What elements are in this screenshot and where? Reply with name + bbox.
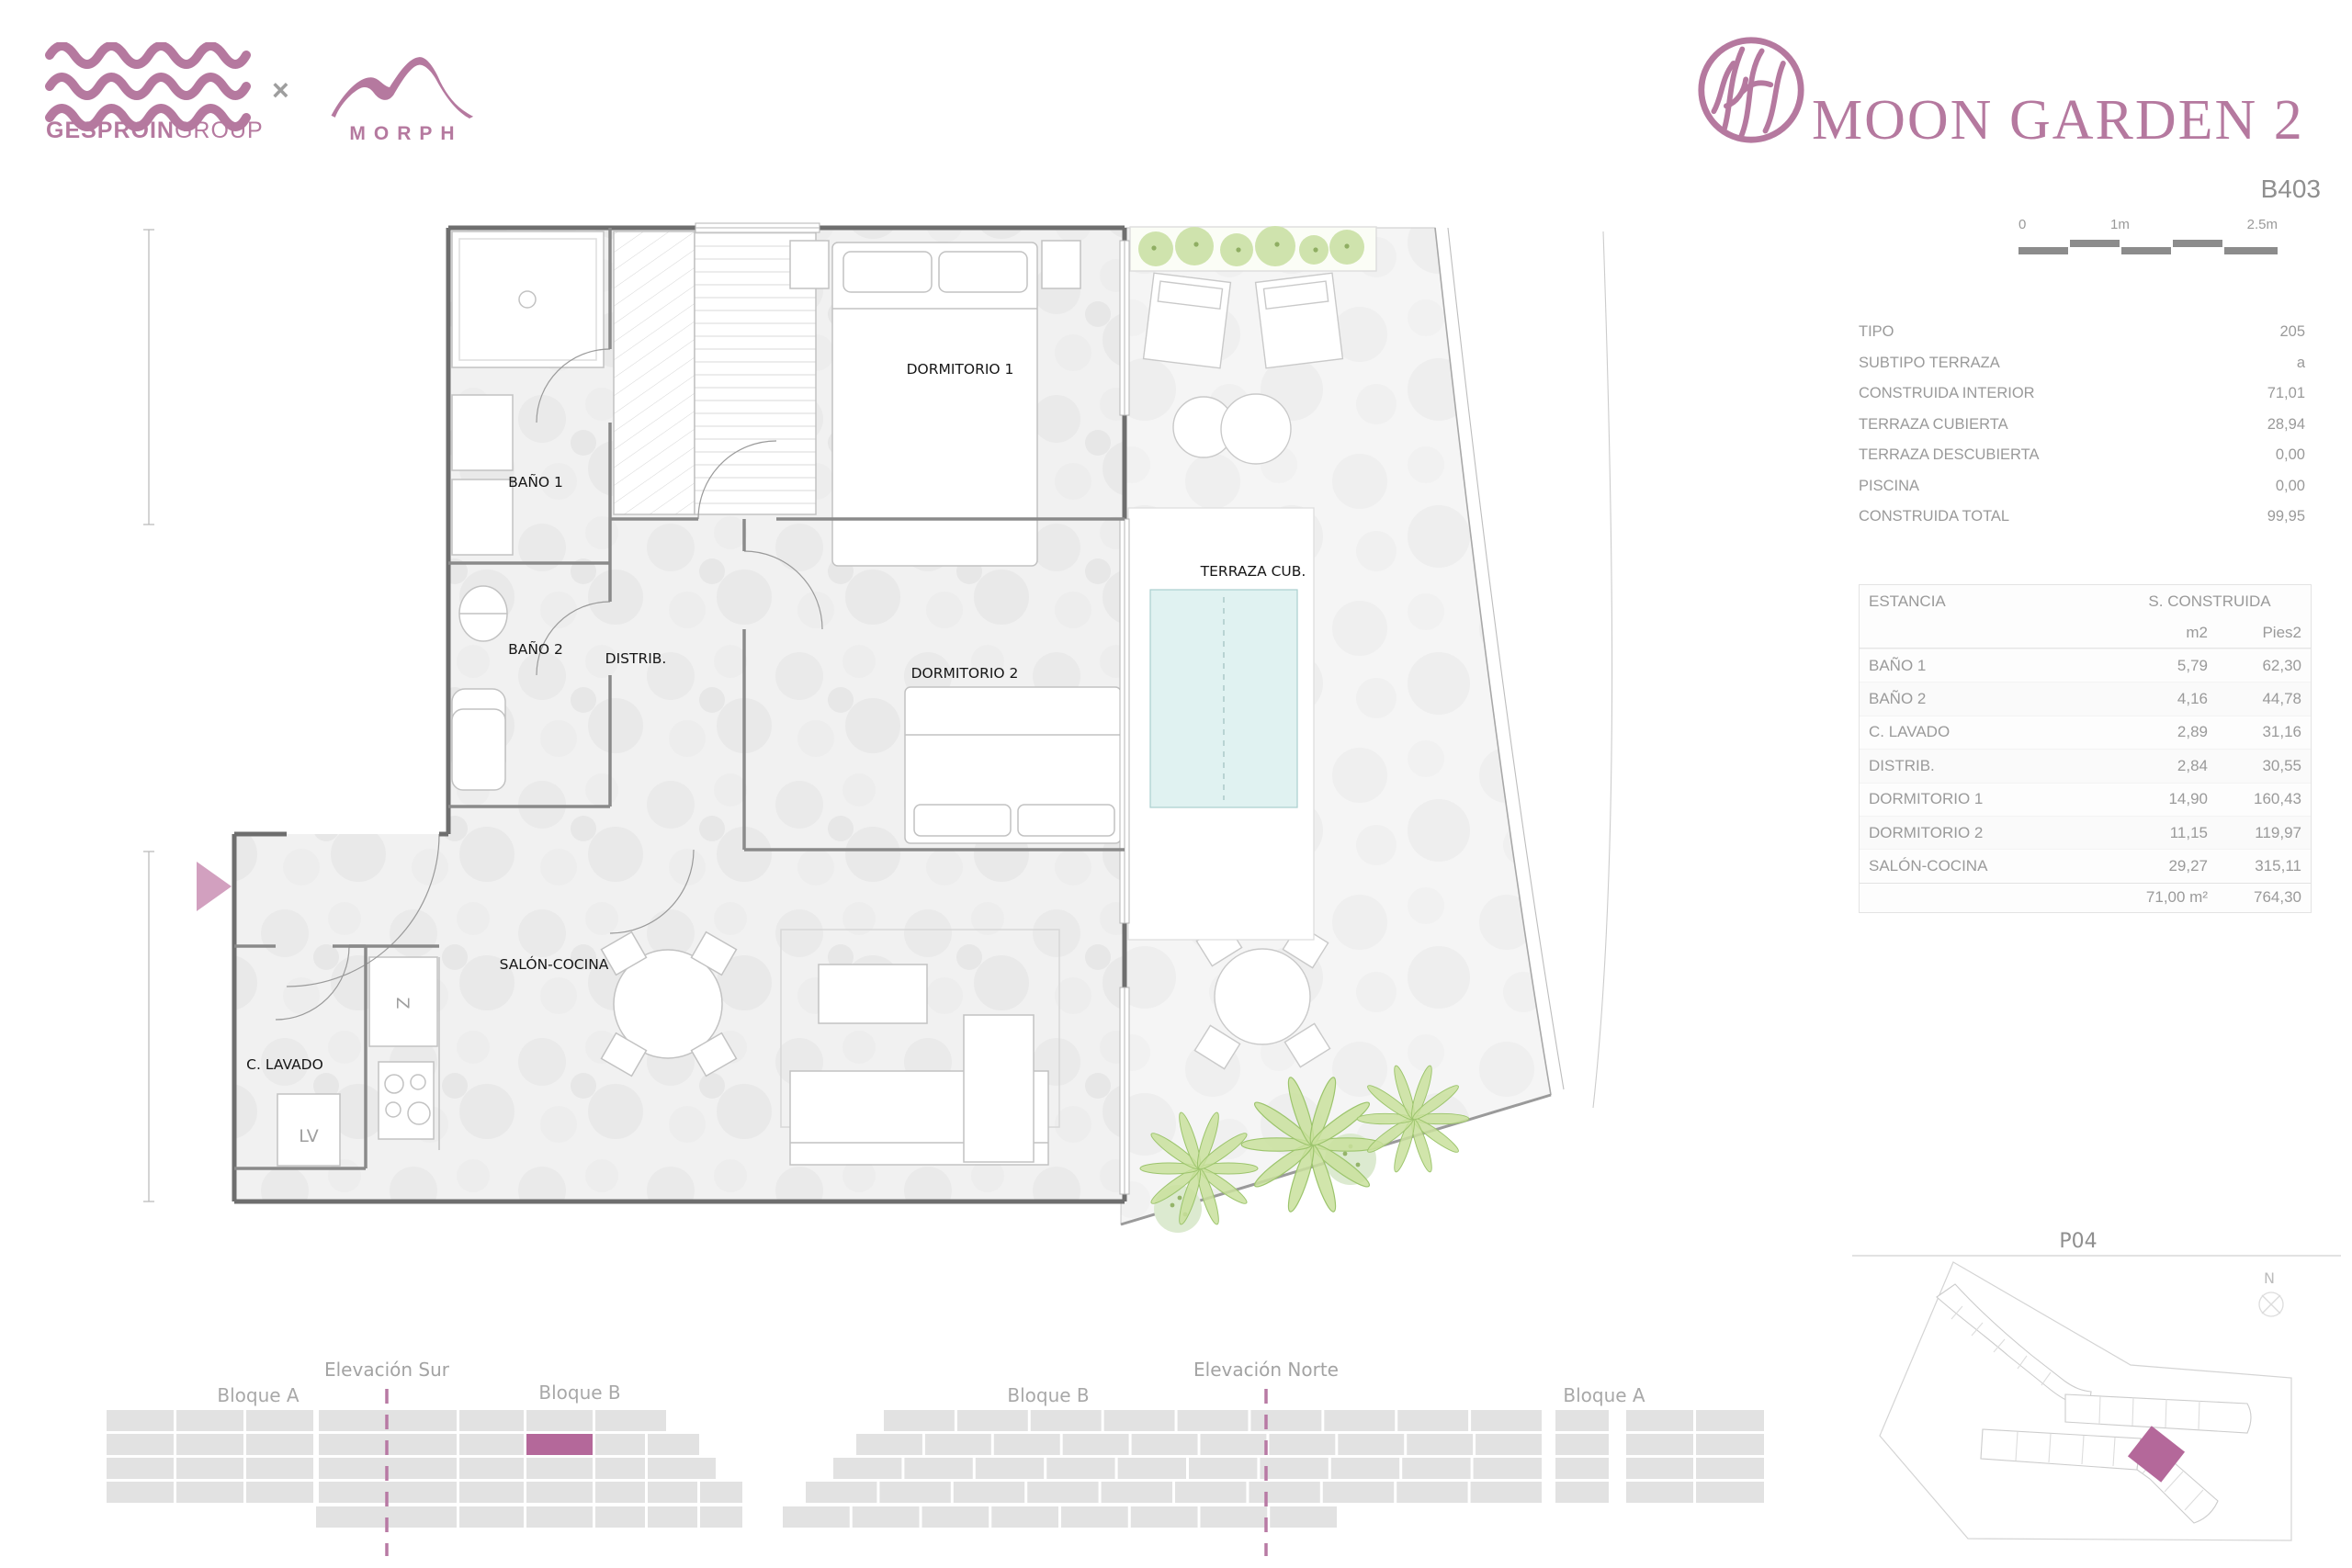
unit-cell xyxy=(879,1482,950,1503)
unit-cell xyxy=(994,1434,1060,1455)
collab-x-icon: × xyxy=(272,73,289,107)
room-name: SALÓN-COCINA xyxy=(1869,857,2127,875)
summary-row: TIPO205 xyxy=(1859,317,2305,348)
site-plan: P04 N xyxy=(1851,1226,2347,1566)
dimension-lines xyxy=(143,230,154,1201)
summary-label: PISCINA xyxy=(1859,478,1919,495)
areas-table: ESTANCIA S. CONSTRUIDA m2 Pies2 BAÑO 15,… xyxy=(1859,584,2312,913)
sur-bloque-a-grid xyxy=(107,1410,313,1503)
north-compass-icon: N xyxy=(2259,1269,2283,1316)
unit-cell xyxy=(459,1434,524,1455)
table-row: C. LAVADO2,8931,16 xyxy=(1860,716,2311,749)
room-label-salon: SALÓN-COCINA xyxy=(500,955,609,973)
room-label-bano1: BAÑO 1 xyxy=(508,473,563,491)
table-row: BAÑO 24,1644,78 xyxy=(1860,682,2311,715)
sur-bloque-a-label: Bloque A xyxy=(217,1384,300,1406)
col-pies2: Pies2 xyxy=(2208,624,2301,642)
unit-cell xyxy=(1324,1410,1395,1431)
unit-cell xyxy=(459,1506,524,1528)
unit-cell xyxy=(1626,1410,1693,1431)
areas-table-total: 71,00 m² 764,30 xyxy=(1860,883,2311,912)
summary-value: 71,01 xyxy=(2267,385,2305,402)
unit-cell xyxy=(1476,1434,1542,1455)
unit-cell xyxy=(922,1506,989,1528)
unit-cell xyxy=(595,1434,645,1455)
unit-cell xyxy=(107,1458,174,1479)
gesproin-light: GROUP xyxy=(175,118,264,143)
summary-value: 0,00 xyxy=(2276,478,2305,495)
summary-row: TERRAZA CUBIERTA28,94 xyxy=(1859,410,2305,441)
summary-value: a xyxy=(2297,355,2305,372)
unit-cell xyxy=(954,1482,1024,1503)
summary-label: CONSTRUIDA INTERIOR xyxy=(1859,385,2035,402)
room-name: C. LAVADO xyxy=(1869,723,2127,741)
room-pies2: 160,43 xyxy=(2208,790,2301,808)
floorplan-sheet: GESPROINGROUP × MORPH MOON GARDEN 2 B403… xyxy=(0,0,2352,1568)
unit-summary: TIPO205 SUBTIPO TERRAZAa CONSTRUIDA INTE… xyxy=(1859,317,2305,533)
unit-cell xyxy=(595,1410,666,1431)
room-pies2: 44,78 xyxy=(2208,690,2301,708)
scale-2.5m-label: 2.5m xyxy=(2247,217,2278,232)
summary-value: 99,95 xyxy=(2267,508,2305,525)
table-row: DISTRIB.2,8430,55 xyxy=(1860,749,2311,782)
unit-cell xyxy=(595,1506,645,1528)
table-row: DORMITORIO 114,90160,43 xyxy=(1860,783,2311,816)
room-label-dormitorio2: DORMITORIO 2 xyxy=(911,665,1019,682)
unit-cell xyxy=(1555,1410,1609,1431)
unit-cell xyxy=(107,1410,174,1431)
table-row: DORMITORIO 211,15119,97 xyxy=(1860,816,2311,849)
total-m2: 71,00 m² xyxy=(2099,888,2208,907)
room-name: DORMITORIO 1 xyxy=(1869,790,2127,808)
unit-cell xyxy=(884,1410,955,1431)
areas-table-subheader: m2 Pies2 xyxy=(1860,618,2311,649)
highlighted-unit-cell xyxy=(526,1434,593,1455)
unit-cell xyxy=(1061,1506,1128,1528)
areas-table-header: ESTANCIA S. CONSTRUIDA xyxy=(1860,585,2311,618)
unit-cell xyxy=(246,1410,313,1431)
summary-label: CONSTRUIDA TOTAL xyxy=(1859,508,2009,525)
room-pies2: 62,30 xyxy=(2208,657,2301,675)
room-m2: 2,89 xyxy=(2127,723,2208,741)
unit-cell xyxy=(526,1506,593,1528)
summary-value: 0,00 xyxy=(2276,446,2305,464)
unit-cell xyxy=(176,1410,243,1431)
scale-0-label: 0 xyxy=(2018,217,2026,232)
unit-cell xyxy=(1626,1434,1693,1455)
unit-cell xyxy=(904,1458,972,1479)
unit-cell xyxy=(176,1434,243,1455)
entrance-arrow-icon xyxy=(197,862,232,911)
room-name: BAÑO 1 xyxy=(1869,657,2127,675)
unit-cell xyxy=(526,1410,593,1431)
unit-cell xyxy=(1104,1410,1175,1431)
room-pies2: 315,11 xyxy=(2208,857,2301,875)
unit-cell xyxy=(1555,1458,1609,1479)
unit-cell xyxy=(176,1458,243,1479)
unit-cell xyxy=(1396,1482,1467,1503)
unit-cell xyxy=(595,1458,645,1479)
unit-cell xyxy=(1201,1506,1268,1528)
unit-cell xyxy=(1132,1434,1198,1455)
unit-cell xyxy=(957,1410,1028,1431)
unit-cell xyxy=(783,1506,850,1528)
unit-cell xyxy=(526,1482,593,1503)
room-m2: 2,84 xyxy=(2127,757,2208,775)
elevation-sur-title: Elevación Sur xyxy=(324,1359,450,1381)
unit-cell xyxy=(459,1482,524,1503)
room-label-dormitorio1: DORMITORIO 1 xyxy=(907,361,1014,378)
summary-label: TIPO xyxy=(1859,323,1894,341)
unit-cell xyxy=(991,1506,1058,1528)
dormitorio2-furniture xyxy=(905,687,1121,843)
table-row: BAÑO 15,7962,30 xyxy=(1860,649,2311,682)
unit-code: B403 xyxy=(2141,175,2321,204)
room-pies2: 119,97 xyxy=(2208,824,2301,842)
room-m2: 14,90 xyxy=(2127,790,2208,808)
unit-cell xyxy=(1323,1482,1394,1503)
unit-cell xyxy=(459,1410,524,1431)
scale-segment xyxy=(2018,247,2068,254)
unit-cell xyxy=(648,1482,697,1503)
unit-cell xyxy=(246,1458,313,1479)
unit-cell xyxy=(648,1458,716,1479)
unit-cell xyxy=(1269,1434,1335,1455)
room-m2: 11,15 xyxy=(2127,824,2208,842)
unit-cell xyxy=(1471,1410,1542,1431)
unit-cell xyxy=(1696,1482,1764,1503)
unit-cell xyxy=(1338,1434,1404,1455)
room-m2: 5,79 xyxy=(2127,657,2208,675)
elevation-norte-title: Elevación Norte xyxy=(1193,1359,1339,1381)
room-m2: 29,27 xyxy=(2127,857,2208,875)
morph-mountain-icon xyxy=(327,53,483,119)
norte-bloque-a-grid xyxy=(1555,1410,1764,1503)
summary-row: CONSTRUIDA TOTAL99,95 xyxy=(1859,502,2305,533)
norte-bloque-a-label: Bloque A xyxy=(1563,1384,1645,1406)
unit-cell xyxy=(1250,1410,1321,1431)
lv-label: LV xyxy=(299,1126,319,1146)
unit-cell xyxy=(459,1458,524,1479)
unit-cell xyxy=(1178,1410,1249,1431)
unit-cell xyxy=(107,1482,174,1503)
col-m2: m2 xyxy=(2127,624,2208,642)
morph-wordmark: MORPH xyxy=(323,123,489,145)
norte-bloque-b-label: Bloque B xyxy=(1007,1384,1089,1406)
table-row: SALÓN-COCINA29,27315,11 xyxy=(1860,849,2311,882)
site-buildings xyxy=(1937,1284,2251,1523)
summary-label: SUBTIPO TERRAZA xyxy=(1859,355,2000,372)
unit-cell xyxy=(1063,1434,1129,1455)
unit-cell xyxy=(1270,1506,1337,1528)
unit-cell xyxy=(1407,1434,1473,1455)
unit-cell xyxy=(1189,1458,1257,1479)
unit-cell xyxy=(1474,1458,1542,1479)
col-s-construida: S. CONSTRUIDA xyxy=(2118,592,2301,611)
summary-value: 205 xyxy=(2279,323,2305,341)
room-label-distrib: DISTRIB. xyxy=(605,650,667,667)
unit-cell xyxy=(1696,1458,1764,1479)
unit-cell xyxy=(1260,1458,1328,1479)
room-pies2: 31,16 xyxy=(2208,723,2301,741)
scale-bar: 0 1m 2.5m xyxy=(2018,217,2278,257)
room-name: BAÑO 2 xyxy=(1869,690,2127,708)
unit-cell xyxy=(595,1482,645,1503)
unit-cell xyxy=(1626,1482,1693,1503)
unit-cell xyxy=(925,1434,991,1455)
col-estancia: ESTANCIA xyxy=(1869,592,2118,611)
scale-segment xyxy=(2070,240,2120,247)
moon-garden-logo-icon xyxy=(1696,35,1806,145)
unit-cell xyxy=(246,1434,313,1455)
unit-cell xyxy=(648,1434,699,1455)
unit-cell xyxy=(1175,1482,1246,1503)
project-title: MOON GARDEN 2 xyxy=(1812,88,2304,153)
sur-bloque-b-grid xyxy=(316,1410,742,1528)
unit-cell xyxy=(1249,1482,1319,1503)
unit-cell xyxy=(853,1506,920,1528)
gesproin-wordmark: GESPROINGROUP xyxy=(46,118,285,144)
unit-cell xyxy=(1555,1482,1609,1503)
unit-cell xyxy=(700,1506,742,1528)
total-pies2: 764,30 xyxy=(2208,888,2301,907)
unit-cell xyxy=(1555,1434,1609,1455)
summary-label: TERRAZA DESCUBIERTA xyxy=(1859,446,2040,464)
unit-cell xyxy=(1331,1458,1399,1479)
unit-cell xyxy=(1131,1506,1198,1528)
unit-cell xyxy=(1626,1458,1693,1479)
unit-cell xyxy=(648,1506,697,1528)
summary-value: 28,94 xyxy=(2267,416,2305,434)
unit-cell xyxy=(1402,1458,1470,1479)
unit-cell xyxy=(1397,1410,1468,1431)
unit-cell xyxy=(1696,1434,1764,1455)
scale-segment xyxy=(2224,247,2278,254)
sur-bloque-b-label: Bloque B xyxy=(538,1382,620,1404)
unit-cell xyxy=(246,1482,313,1503)
unit-cell xyxy=(976,1458,1044,1479)
scale-1m-label: 1m xyxy=(2110,217,2130,232)
room-label-terraza: TERRAZA CUB. xyxy=(1200,563,1306,580)
unit-cell xyxy=(1201,1434,1267,1455)
unit-cell xyxy=(833,1458,901,1479)
room-name: DISTRIB. xyxy=(1869,757,2127,775)
unit-cell xyxy=(1118,1458,1186,1479)
norte-bloque-b-grid xyxy=(783,1410,1542,1528)
north-label: N xyxy=(2264,1269,2275,1287)
summary-row: TERRAZA DESCUBIERTA0,00 xyxy=(1859,440,2305,471)
summary-row: SUBTIPO TERRAZAa xyxy=(1859,348,2305,379)
unit-cell xyxy=(176,1482,243,1503)
scale-segment xyxy=(2173,240,2222,247)
room-name: DORMITORIO 2 xyxy=(1869,824,2127,842)
unit-cell xyxy=(1102,1482,1172,1503)
summary-label: TERRAZA CUBIERTA xyxy=(1859,416,2008,434)
unit-cell xyxy=(806,1482,876,1503)
summary-row: PISCINA0,00 xyxy=(1859,471,2305,502)
unit-cell xyxy=(1031,1410,1102,1431)
unit-cell xyxy=(107,1434,174,1455)
room-m2: 4,16 xyxy=(2127,690,2208,708)
site-plan-title: P04 xyxy=(2059,1230,2097,1253)
scale-segment xyxy=(2121,247,2171,254)
floor-plan: DORMITORIO 1 BAÑO 1 BAÑO 2 DISTRIB. DORM… xyxy=(138,211,1626,1277)
unit-cell xyxy=(700,1482,742,1503)
room-pies2: 30,55 xyxy=(2208,757,2301,775)
fridge-label: Z xyxy=(392,997,413,1009)
unit-cell xyxy=(1027,1482,1098,1503)
unit-cell xyxy=(1696,1410,1764,1431)
elevations: Elevación Sur Bloque A Bloque B Elevació… xyxy=(55,1350,1810,1568)
summary-row: CONSTRUIDA INTERIOR71,01 xyxy=(1859,378,2305,410)
unit-cell xyxy=(856,1434,922,1455)
room-label-bano2: BAÑO 2 xyxy=(508,640,563,658)
unit-cell xyxy=(526,1458,593,1479)
room-label-clavado: C. LAVADO xyxy=(246,1056,323,1073)
unit-cell xyxy=(1471,1482,1542,1503)
gesproin-bold: GESPROIN xyxy=(46,118,175,143)
unit-cell xyxy=(1046,1458,1114,1479)
